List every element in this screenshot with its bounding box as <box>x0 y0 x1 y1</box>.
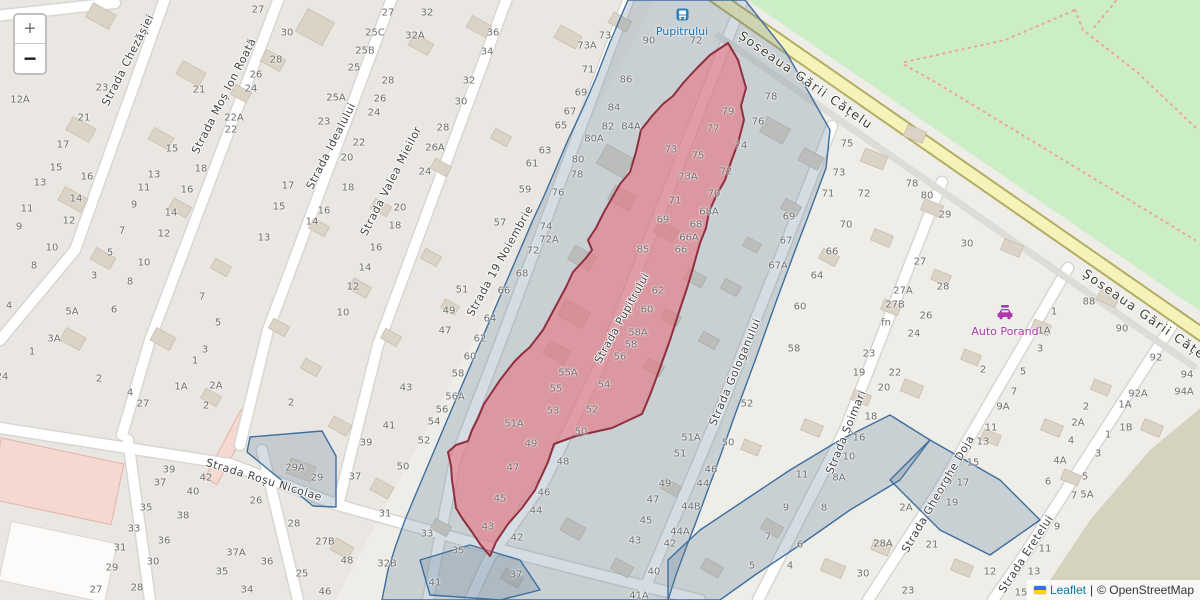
leaflet-link[interactable]: Leaflet <box>1050 583 1086 597</box>
zoom-control: + − <box>13 13 47 75</box>
map-canvas[interactable] <box>0 0 1200 600</box>
ukraine-flag-icon <box>1034 586 1046 594</box>
attribution-divider: | <box>1090 583 1093 597</box>
openstreetmap-link[interactable]: © OpenStreetMap <box>1097 583 1194 597</box>
map-viewport[interactable]: 12A2321171513119161412108424531131197618… <box>0 0 1200 600</box>
zoom-out-button[interactable]: − <box>15 44 45 73</box>
attribution-bar: Leaflet | © OpenStreetMap <box>1027 580 1200 600</box>
zoom-in-button[interactable]: + <box>15 15 45 44</box>
